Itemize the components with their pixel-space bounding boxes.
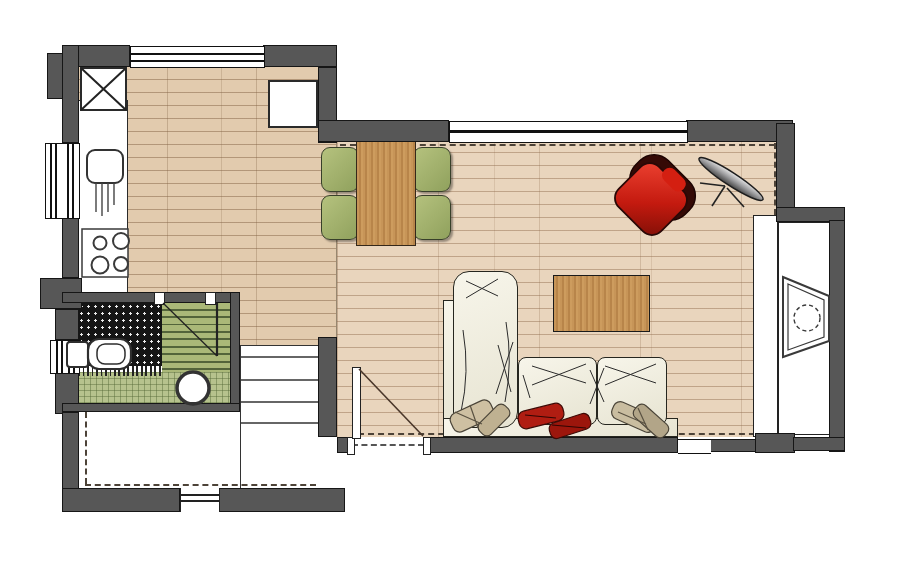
wall-bottom-right-a xyxy=(755,433,795,453)
wall-living-top-left xyxy=(318,120,449,142)
wall-left-mid xyxy=(62,217,79,278)
wall-porch-bottom-right xyxy=(218,488,345,512)
living-door-jamb-right xyxy=(423,437,431,455)
dining-chair-bottom-left xyxy=(321,195,359,240)
coffee-table xyxy=(553,275,650,332)
wall-porch-bottom-left xyxy=(62,488,180,512)
wall-staircase xyxy=(318,337,337,437)
sofa-cushion-right xyxy=(597,357,667,425)
fridge-unit xyxy=(80,67,127,111)
bath-door-jamb-left xyxy=(154,292,165,305)
dining-chair-bottom-right xyxy=(413,195,451,240)
wall-left-bath-upper xyxy=(55,309,79,340)
wall-right-upper xyxy=(776,123,795,209)
wall-living-bottom-main xyxy=(424,437,678,453)
wall-left-upper xyxy=(62,45,79,143)
bathroom-left-window xyxy=(50,340,80,374)
bath-striped-mat xyxy=(162,303,230,372)
wall-bottom-right-b xyxy=(793,437,845,451)
living-door-leaf xyxy=(352,367,361,439)
wall-living-bottom-right xyxy=(710,439,757,452)
living-door-jamb-left xyxy=(347,437,355,455)
living-bottom-window xyxy=(678,439,711,454)
wall-right-outer xyxy=(829,220,845,452)
bath-door-jamb-right xyxy=(205,292,216,305)
sofa-chaise-cushion xyxy=(453,271,518,428)
wardrobe-strip xyxy=(753,215,778,437)
porch-roof-dashed-line xyxy=(85,484,316,486)
porch-roof-dashed-line-left xyxy=(85,412,87,484)
dining-chair-top-right xyxy=(413,147,451,192)
shower-fringe-edge xyxy=(78,366,162,376)
entry-niche xyxy=(778,222,831,435)
sofa-cushion-middle xyxy=(518,357,597,425)
living-door-opening xyxy=(352,437,424,453)
kitchen-counter xyxy=(78,100,128,300)
wall-bath-bottom xyxy=(62,403,240,412)
staircase xyxy=(240,345,319,489)
porch xyxy=(78,412,240,488)
living-top-window xyxy=(449,121,688,143)
kitchen-top-window xyxy=(130,46,265,68)
floor-plan xyxy=(0,0,909,581)
shower-dark-tiles xyxy=(78,303,162,366)
porch-threshold-opening xyxy=(180,488,220,512)
wall-kitchen-top-right xyxy=(263,45,337,67)
wall-pilaster-top-left xyxy=(47,53,63,99)
kitchen-left-window xyxy=(45,143,80,219)
wall-cabinet xyxy=(268,80,318,128)
dining-table xyxy=(356,137,416,246)
bath-plaid-floor xyxy=(78,372,230,403)
wall-bath-right xyxy=(230,292,240,412)
dining-chair-top-left xyxy=(321,147,359,192)
